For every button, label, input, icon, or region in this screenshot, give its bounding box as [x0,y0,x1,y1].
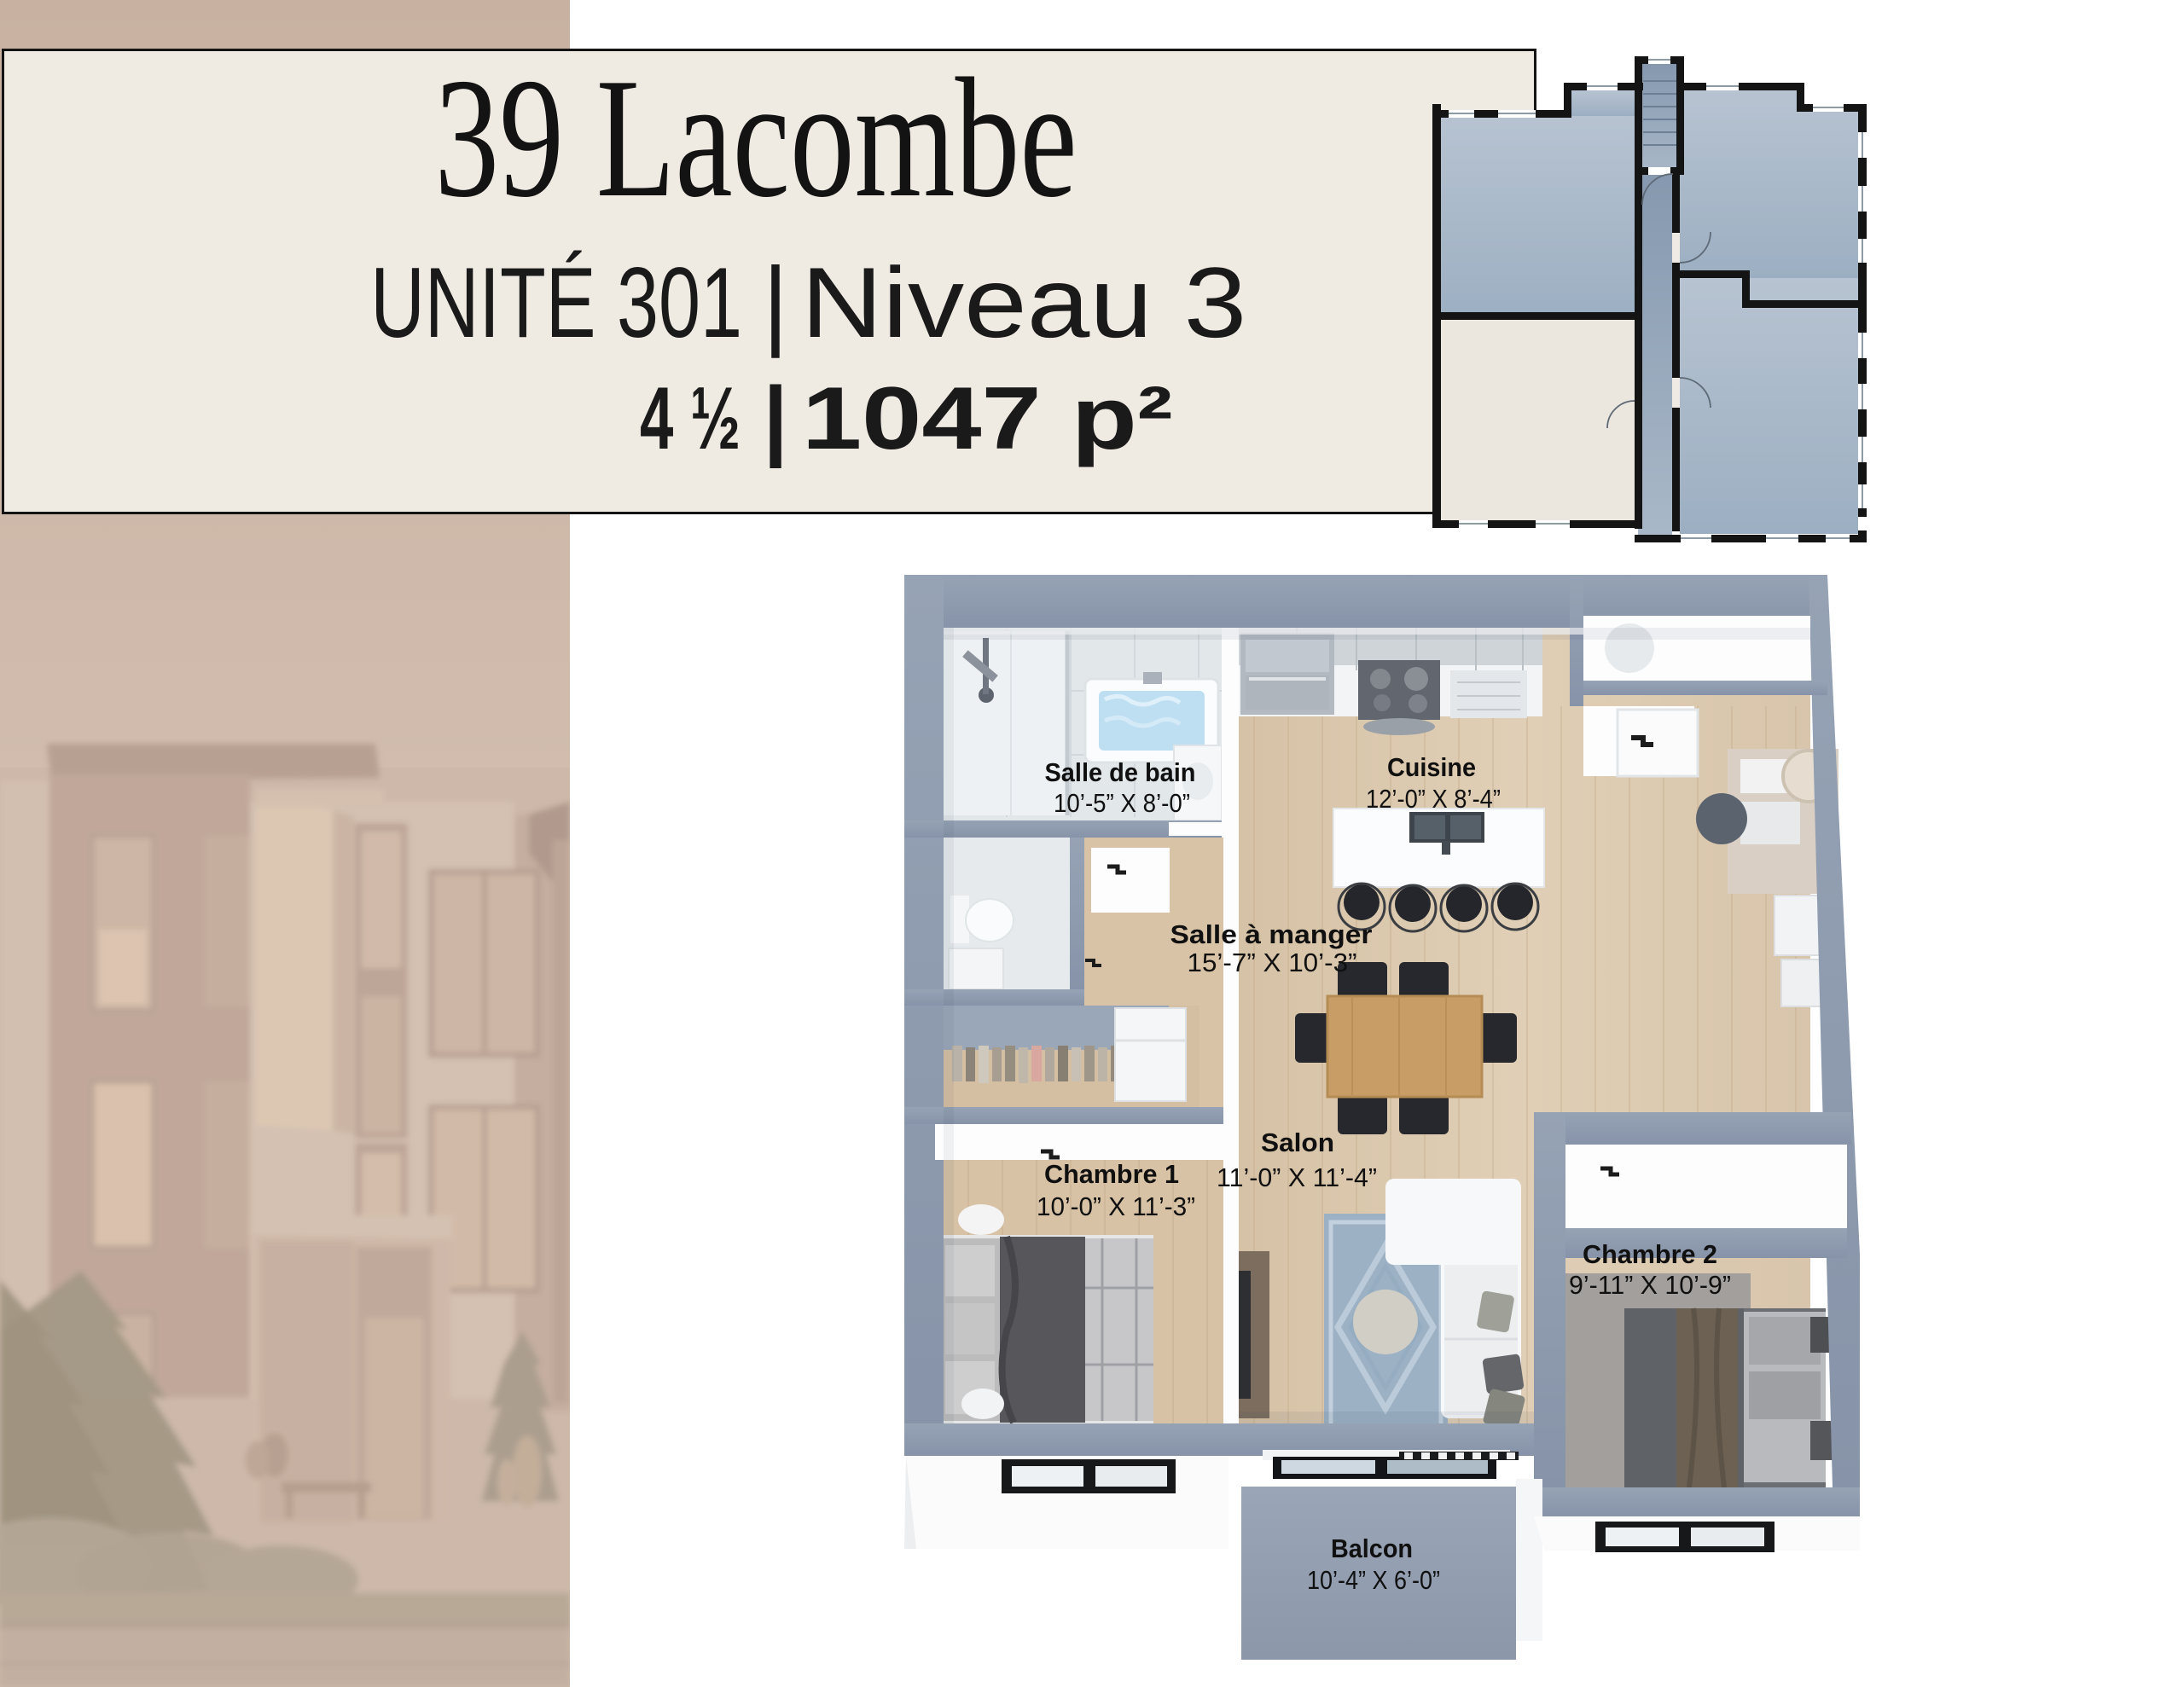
svg-text:Cuisine: Cuisine [1387,752,1476,782]
svg-text:15’-7” X 10’-3”: 15’-7” X 10’-3” [1188,948,1357,977]
svg-text:12’-0” X 8’-4”: 12’-0” X 8’-4” [1366,785,1501,814]
svg-text:10’-5” X 8’-0”: 10’-5” X 8’-0” [1054,789,1190,818]
svg-text:Salle de bain: Salle de bain [1045,757,1196,787]
svg-text:10’-4” X 6’-0”: 10’-4” X 6’-0” [1307,1566,1440,1595]
svg-text:Salle à manger: Salle à manger [1170,919,1373,949]
svg-text:Chambre 2: Chambre 2 [1583,1239,1717,1269]
svg-text:Balcon: Balcon [1331,1533,1413,1563]
svg-text:Salon: Salon [1261,1128,1334,1157]
svg-text:11’-0” X 11’-4”: 11’-0” X 11’-4” [1217,1163,1377,1192]
svg-text:9’-11” X 10’-9”: 9’-11” X 10’-9” [1569,1271,1731,1300]
svg-text:10’-0” X 11’-3”: 10’-0” X 11’-3” [1037,1192,1195,1221]
svg-text:Chambre 1: Chambre 1 [1044,1159,1179,1189]
